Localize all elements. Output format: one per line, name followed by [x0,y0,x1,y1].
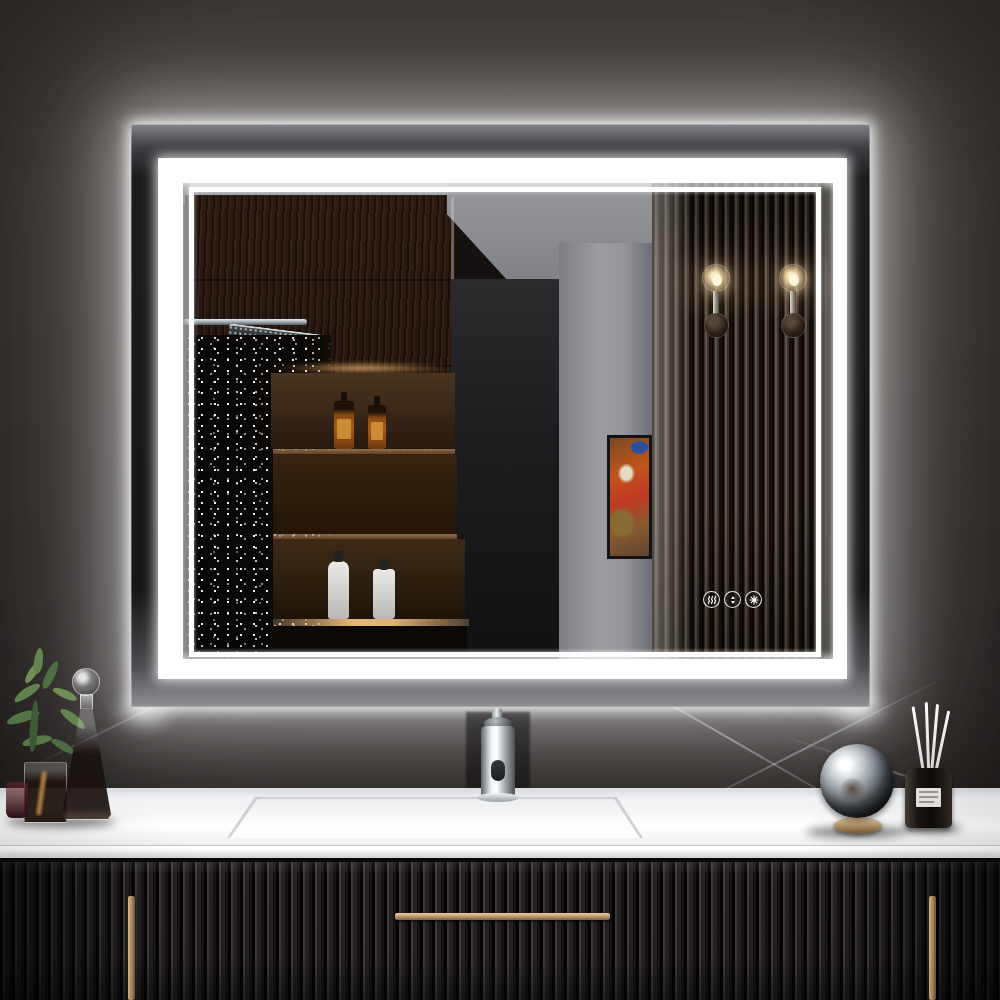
countertop-front-edge [0,845,1000,858]
right-door-handle [929,896,936,1000]
glass-decanter [62,708,111,820]
decanter-stopper [72,668,100,696]
color-temperature-icon [749,595,759,605]
defog-icon [707,595,717,605]
faucet-spout-shadow [491,760,505,781]
faucet-base [477,793,519,802]
sink-basin-inner [230,799,640,838]
sink-basin [227,797,643,838]
gold-ring-stand [834,817,882,834]
led-mirror [131,124,870,707]
defogger-button [703,591,720,608]
center-drawer-handle [395,913,610,920]
left-door-handle [128,896,135,1000]
brightness-up-down-icon [728,595,738,605]
reed-diffuser-bottle [905,768,952,828]
brightness-button [724,591,741,608]
sphere-reflection [838,778,868,800]
diffuser-label [916,788,941,807]
color-temp-button [745,591,762,608]
plant-stems [36,771,47,815]
mirrored-sphere [820,744,894,818]
diffuser-reed [925,702,930,772]
bathroom-scene [0,0,1000,1000]
decanter-neck [80,694,93,709]
fluted-vanity-cabinet [0,862,1000,1000]
diffuser-reed [912,706,926,776]
ruby-glass [6,782,28,818]
led-frame-band [158,158,847,679]
glass-cube-vase [24,762,67,823]
